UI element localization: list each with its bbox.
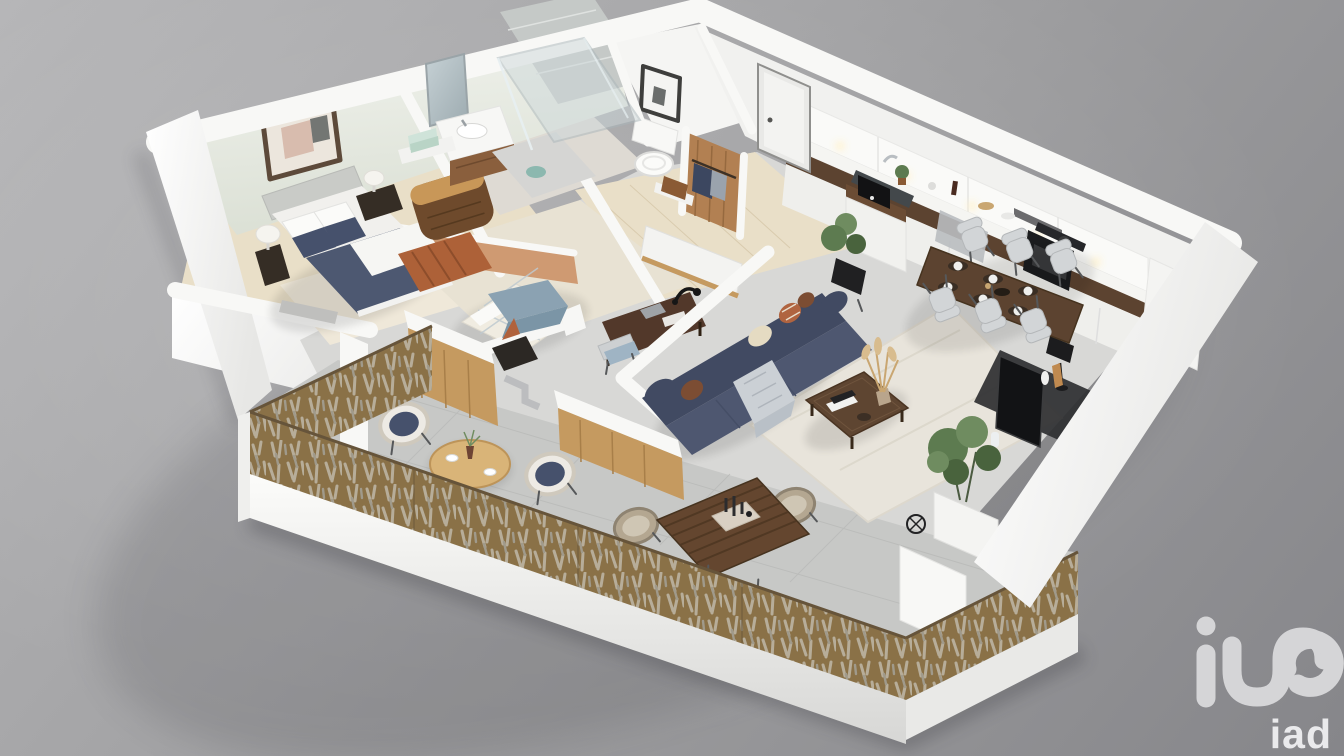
brand-text: iad	[1270, 711, 1332, 756]
cup	[446, 455, 458, 462]
brand-mark-dot	[1197, 617, 1216, 636]
floor-plan-scene: iad	[0, 0, 1344, 756]
table-lamp	[364, 171, 384, 186]
basin	[457, 124, 487, 139]
floor-plan-render: iad	[0, 0, 1344, 756]
door-handle-icon	[768, 118, 773, 123]
white-figurine	[1041, 371, 1049, 385]
bath-mat	[526, 166, 546, 178]
white-vase	[991, 432, 999, 447]
bowl	[857, 413, 871, 421]
cup	[484, 469, 496, 476]
table-lamp	[256, 225, 280, 243]
